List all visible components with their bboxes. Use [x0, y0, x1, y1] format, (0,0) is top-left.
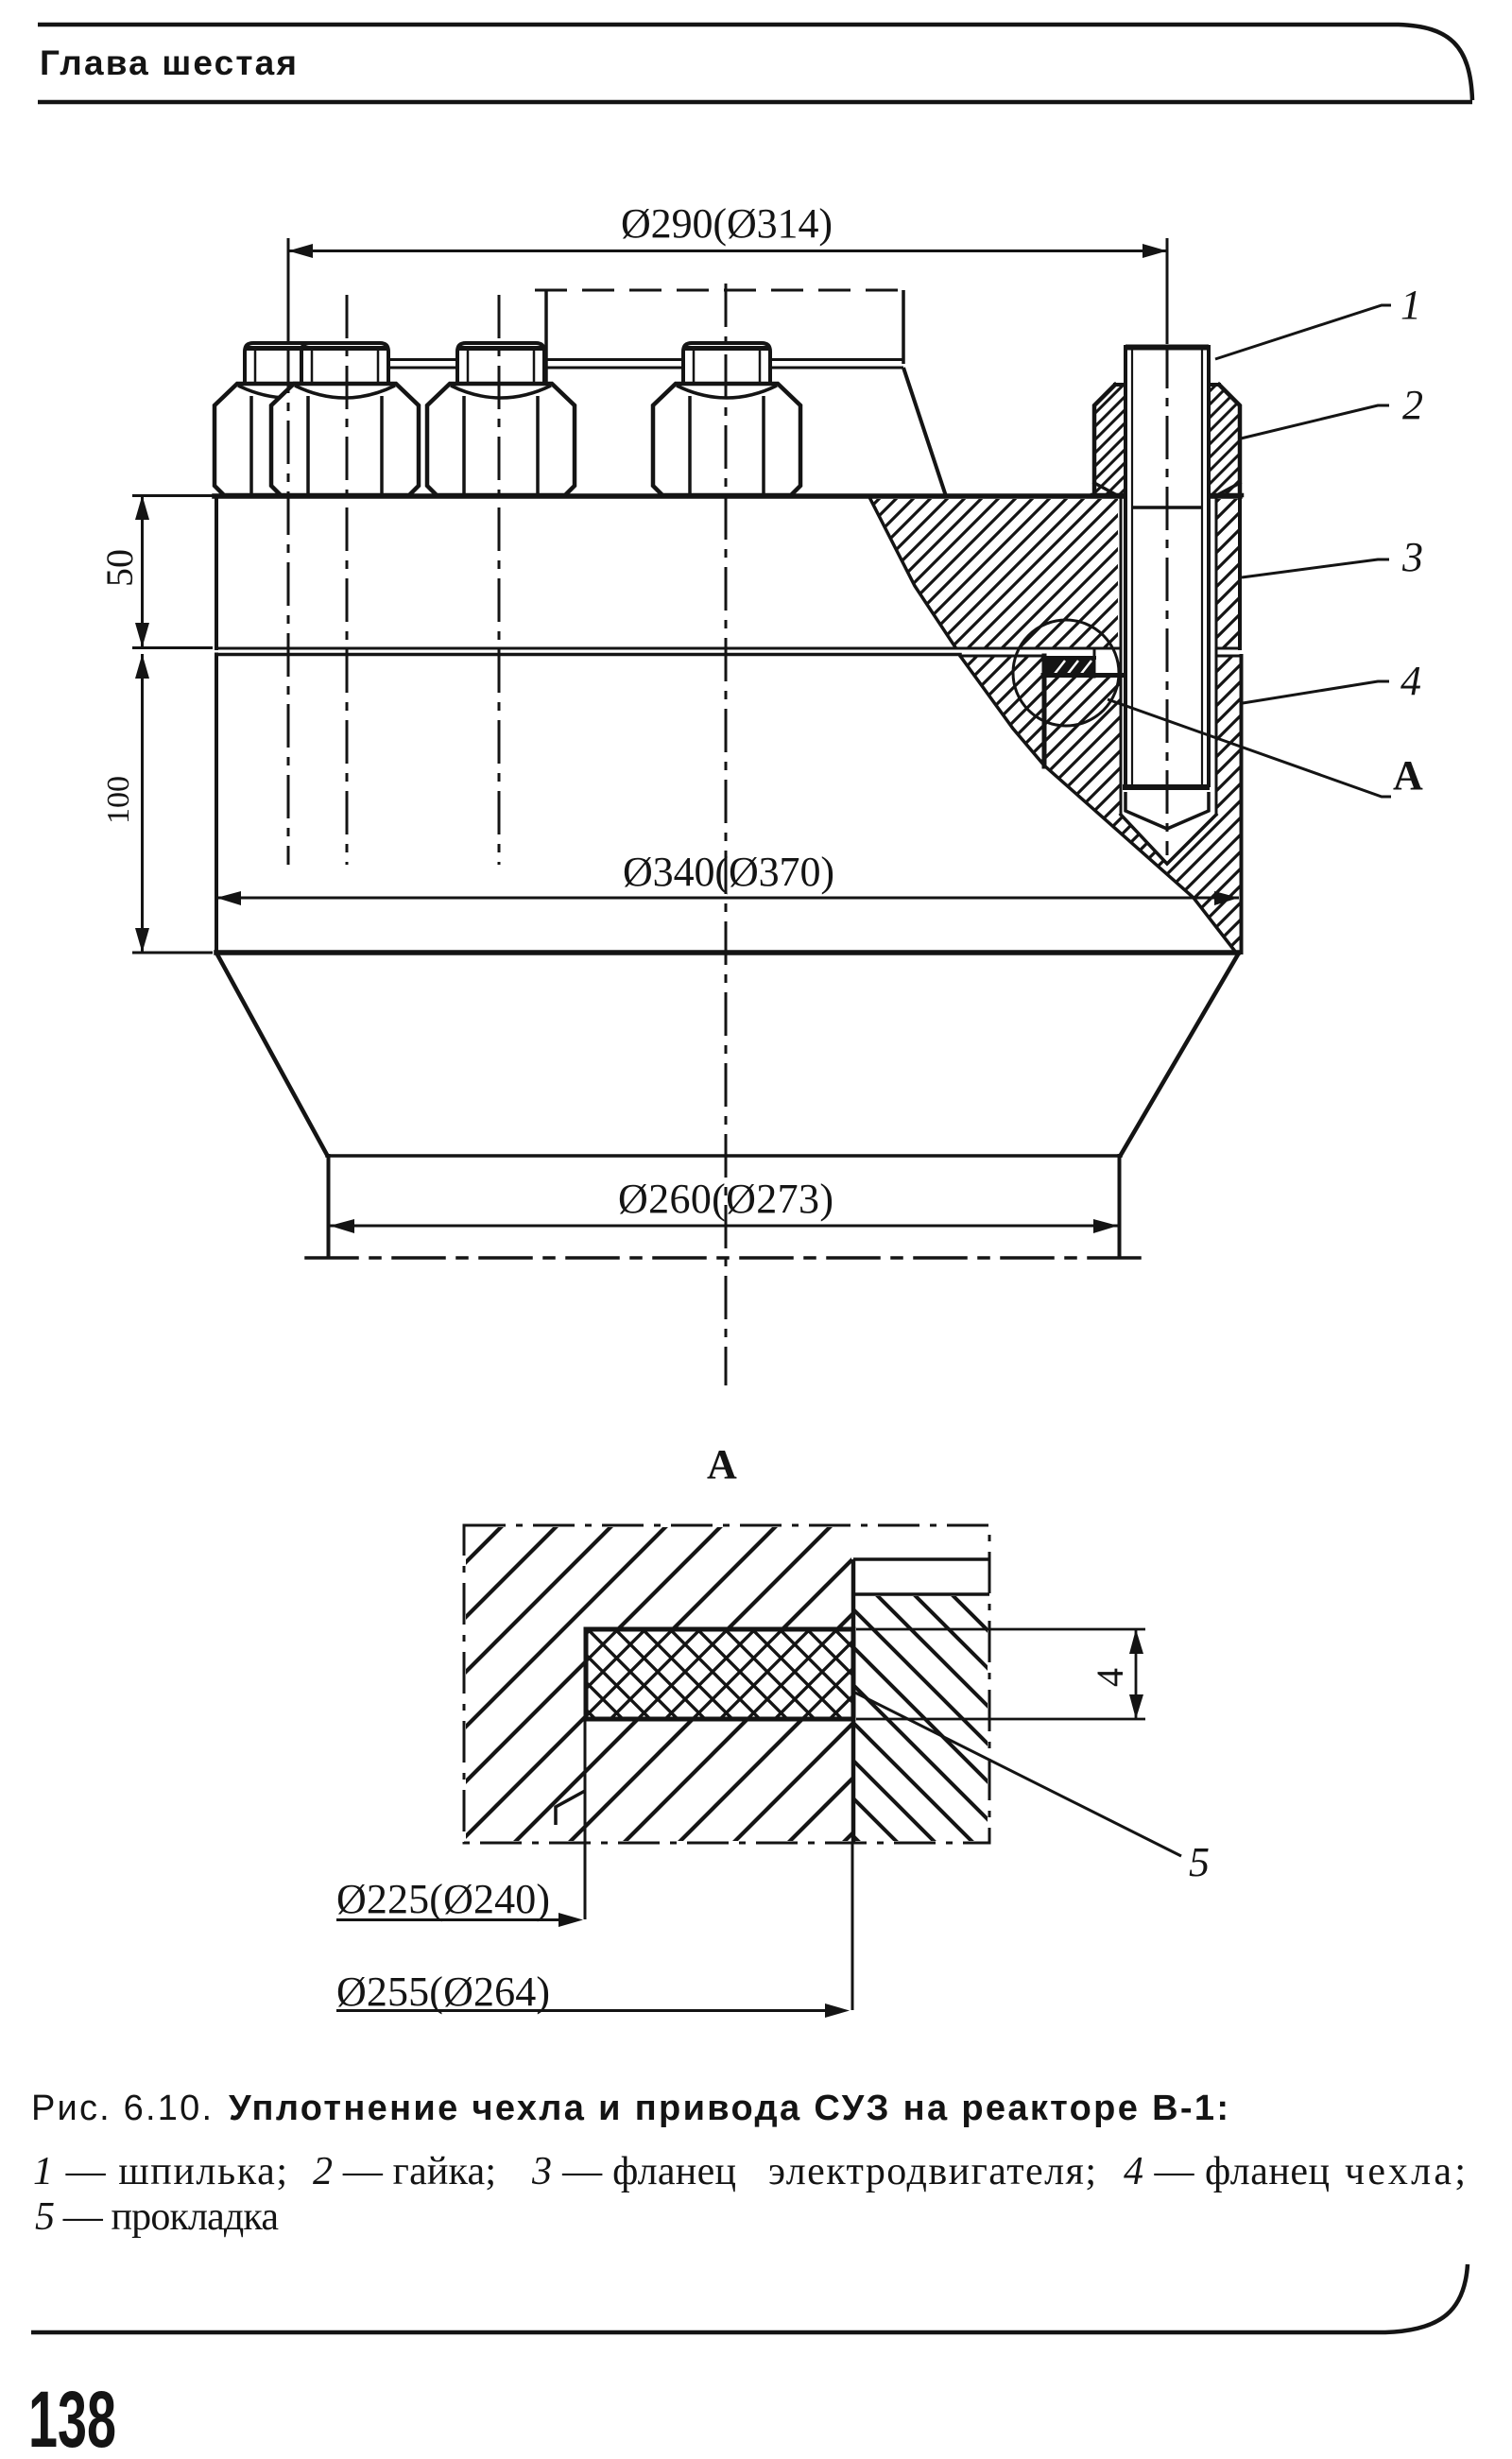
- svg-text:4: 4: [1400, 658, 1421, 704]
- svg-text:Глава шестая: Глава шестая: [40, 43, 297, 82]
- svg-text:5 — прокладка: 5 — прокладка: [35, 2195, 279, 2239]
- svg-text:Ø260(Ø273): Ø260(Ø273): [618, 1176, 833, 1222]
- svg-text:Ø255(Ø264): Ø255(Ø264): [336, 1969, 550, 2015]
- svg-text:Уплотнение чехла и привода СУЗ: Уплотнение чехла и привода СУЗ на реакто…: [229, 2089, 1228, 2128]
- svg-text:2: 2: [1402, 382, 1423, 428]
- svg-text:5: 5: [1189, 1839, 1210, 1885]
- svg-text:138: 138: [28, 2375, 116, 2459]
- svg-text:50: 50: [98, 549, 141, 587]
- svg-text:электродвигателя;: электродвигателя;: [768, 2150, 1096, 2193]
- svg-text:4 — фланец: 4 — фланец: [1124, 2150, 1330, 2193]
- svg-text:Ø290(Ø314): Ø290(Ø314): [621, 200, 833, 247]
- svg-text:чехла;: чехла;: [1345, 2150, 1466, 2193]
- svg-text:А: А: [707, 1441, 737, 1487]
- svg-text:3: 3: [1401, 534, 1423, 580]
- svg-text:2 — гайка;: 2 — гайка;: [313, 2150, 496, 2193]
- svg-text:100: 100: [101, 776, 136, 824]
- svg-text:Ø340(Ø370): Ø340(Ø370): [623, 849, 834, 895]
- svg-text:1: 1: [1400, 282, 1421, 328]
- svg-text:А: А: [1393, 752, 1423, 799]
- svg-text:Рис. 6.10.: Рис. 6.10.: [31, 2089, 212, 2128]
- svg-text:4: 4: [1089, 1668, 1131, 1687]
- svg-text:Ø225(Ø240): Ø225(Ø240): [336, 1876, 550, 1922]
- svg-text:1 — шпилька;: 1 — шпилька;: [33, 2150, 287, 2193]
- svg-text:3 — фланец: 3 — фланец: [531, 2150, 736, 2193]
